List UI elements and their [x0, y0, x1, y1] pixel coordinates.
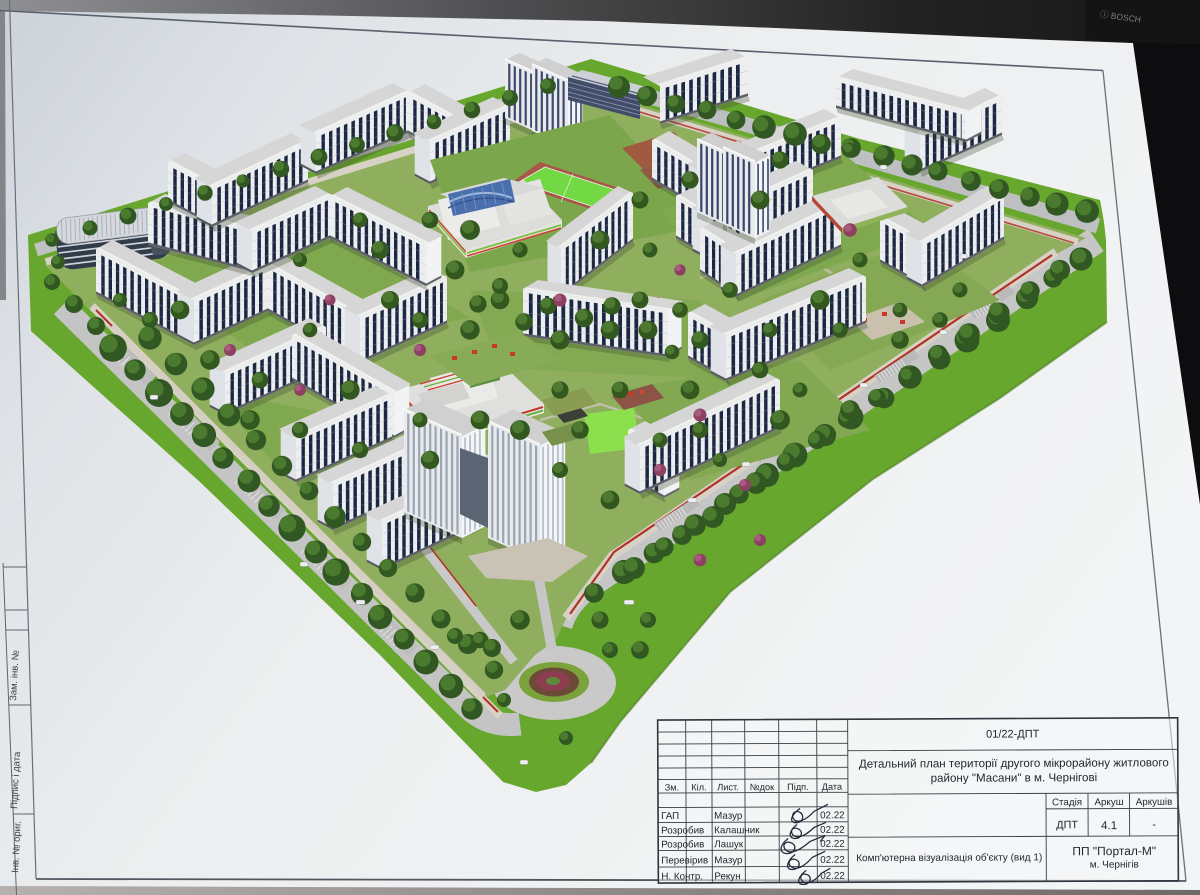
svg-text:Розробив: Розробив: [661, 825, 704, 836]
svg-text:Мазур: Мазур: [714, 811, 743, 822]
svg-text:Мазур: Мазур: [714, 855, 743, 866]
svg-text:Рекун: Рекун: [714, 871, 740, 882]
svg-text:району "Масани" в м. Чернігові: району "Масани" в м. Чернігові: [931, 771, 1098, 785]
svg-text:Н. Контр.: Н. Контр.: [661, 871, 703, 882]
svg-text:02.22: 02.22: [820, 825, 845, 836]
svg-text:Лашук: Лашук: [714, 839, 744, 850]
svg-text:Дата: Дата: [822, 782, 843, 792]
svg-text:Стадія: Стадія: [1052, 797, 1082, 808]
svg-text:Комп'ютерна візуалізація об'єк: Комп'ютерна візуалізація об'єкту (вид 1): [856, 851, 1042, 864]
svg-text:Аркуш: Аркуш: [1094, 797, 1123, 808]
svg-text:-: -: [1152, 819, 1156, 831]
svg-text:ПП "Портал-М": ПП "Портал-М": [1072, 844, 1156, 858]
svg-text:Кіл.: Кіл.: [691, 782, 706, 792]
svg-text:Калашник: Калашник: [714, 825, 760, 836]
svg-text:Лист.: Лист.: [717, 782, 739, 792]
svg-text:Детальний план території друго: Детальний план території другого мікрора…: [859, 756, 1169, 770]
svg-text:4.1: 4.1: [1101, 820, 1117, 832]
svg-text:ДПТ: ДПТ: [1056, 819, 1078, 831]
svg-text:Підп.: Підп.: [787, 782, 809, 792]
svg-text:02.22: 02.22: [820, 810, 845, 821]
svg-text:Розробив: Розробив: [661, 839, 704, 850]
svg-text:02.22: 02.22: [820, 855, 845, 866]
svg-text:№док: №док: [750, 782, 775, 792]
svg-text:ГАП: ГАП: [661, 811, 679, 822]
svg-text:м. Чернігів: м. Чернігів: [1090, 859, 1139, 870]
svg-text:02.22: 02.22: [820, 839, 845, 850]
svg-text:Аркушів: Аркушів: [1136, 797, 1173, 808]
svg-text:Зм.: Зм.: [665, 782, 679, 792]
svg-text:01/22-ДПТ: 01/22-ДПТ: [986, 728, 1040, 740]
svg-text:Перевірив: Перевірив: [661, 855, 708, 866]
